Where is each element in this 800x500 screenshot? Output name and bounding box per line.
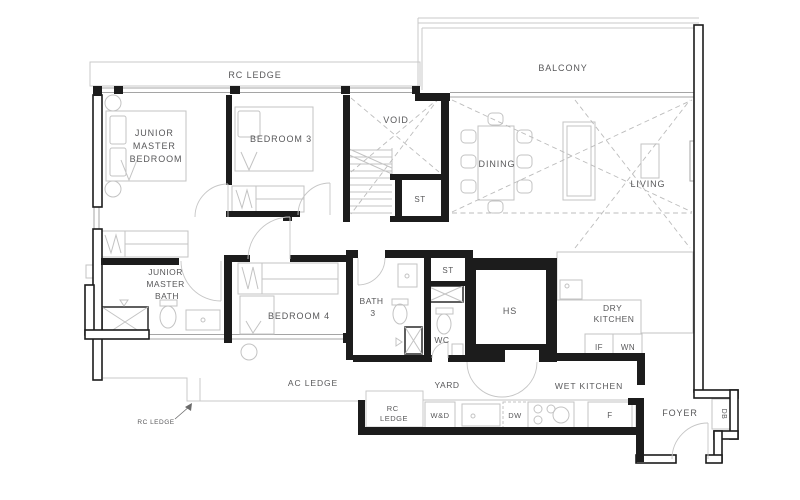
washer-dryer-label: W&D xyxy=(431,411,450,420)
wn-label: WN xyxy=(621,343,635,352)
fridge-label: F xyxy=(607,411,612,420)
pillow xyxy=(110,116,126,144)
pillow xyxy=(110,148,126,176)
bath-3-label: BATH 3 xyxy=(360,296,387,318)
jmb-door-arc xyxy=(195,184,228,217)
toilet xyxy=(160,306,176,328)
junior-master-bedroom-furniture xyxy=(102,95,188,257)
bedroom-3-furniture xyxy=(232,107,313,212)
void-label: VOID xyxy=(383,115,409,125)
chair xyxy=(517,155,532,168)
shower-head xyxy=(120,300,128,306)
balcony-label: BALCONY xyxy=(538,63,587,73)
wet-kitchen-fixtures xyxy=(425,402,632,428)
duvet-fold xyxy=(241,152,257,170)
toilet-tank xyxy=(436,308,453,314)
staircase xyxy=(347,148,392,213)
dining-label: DINING xyxy=(479,159,516,169)
dishwasher-label: DW xyxy=(508,411,522,420)
bedroom4-door-arc xyxy=(248,217,290,259)
entry-door-arc xyxy=(672,423,708,459)
rc-ledge-callout-label: RC LEDGE xyxy=(137,419,174,426)
balcony-structure xyxy=(418,18,699,97)
rc-ledge-top-label: RC LEDGE xyxy=(228,70,281,80)
bedroom-4-label: BEDROOM 4 xyxy=(268,311,330,321)
side-table xyxy=(105,95,121,111)
hs-door-arc xyxy=(467,362,537,397)
toilet xyxy=(437,314,451,334)
chair xyxy=(488,201,503,213)
vanity xyxy=(398,264,417,287)
sink xyxy=(560,280,582,299)
rc-ledge-callout-arrow xyxy=(175,403,192,419)
junior-master-bedroom-label: JUNIOR MASTER BEDROOM xyxy=(130,128,183,164)
ac-ledge-label: AC LEDGE xyxy=(288,378,338,388)
wet-kitchen-label: WET KITCHEN xyxy=(555,381,623,391)
basin xyxy=(452,344,463,356)
window-band-top xyxy=(95,88,418,93)
rc-ledge-lower-label: RC LEDGE xyxy=(380,404,408,423)
store-hall-label: ST xyxy=(442,266,453,275)
store-void-label: ST xyxy=(414,195,425,204)
basin xyxy=(405,274,409,278)
wc-label: WC xyxy=(434,335,449,345)
yard-label: YARD xyxy=(435,380,460,390)
duvet-fold xyxy=(246,321,261,333)
side-table xyxy=(105,181,121,197)
tv-console xyxy=(641,144,659,178)
foyer-label: FOYER xyxy=(662,408,698,418)
chair xyxy=(461,155,476,168)
toilet xyxy=(393,304,407,324)
chair xyxy=(517,180,532,193)
hall-store-fixtures xyxy=(427,286,463,302)
sink xyxy=(462,404,500,426)
living-label: LIVING xyxy=(631,179,666,189)
shower-head xyxy=(396,338,402,346)
floor-plan-drawing: RC LEDGE BALCONY VOID ST DINING LIVING J… xyxy=(0,0,800,500)
basin xyxy=(201,318,205,322)
if-label: IF xyxy=(595,343,603,352)
vanity xyxy=(186,310,220,330)
ac-unit xyxy=(241,344,257,360)
chair xyxy=(461,130,476,143)
db-label: DB xyxy=(720,409,727,420)
junior-master-bath-label: JUNIOR MASTER BATH xyxy=(146,267,187,301)
bath3-door-arc xyxy=(358,258,385,285)
bath-3-fixtures xyxy=(392,264,422,354)
bedroom-3-label: BEDROOM 3 xyxy=(250,134,312,144)
chair xyxy=(461,180,476,193)
dry-kitchen-label: DRY KITCHEN xyxy=(594,303,635,324)
sideboard xyxy=(563,122,595,200)
wc-fixtures xyxy=(436,308,463,356)
floor-plan-page: RC LEDGE BALCONY VOID ST DINING LIVING J… xyxy=(0,0,800,500)
hs-label: HS xyxy=(503,306,517,316)
